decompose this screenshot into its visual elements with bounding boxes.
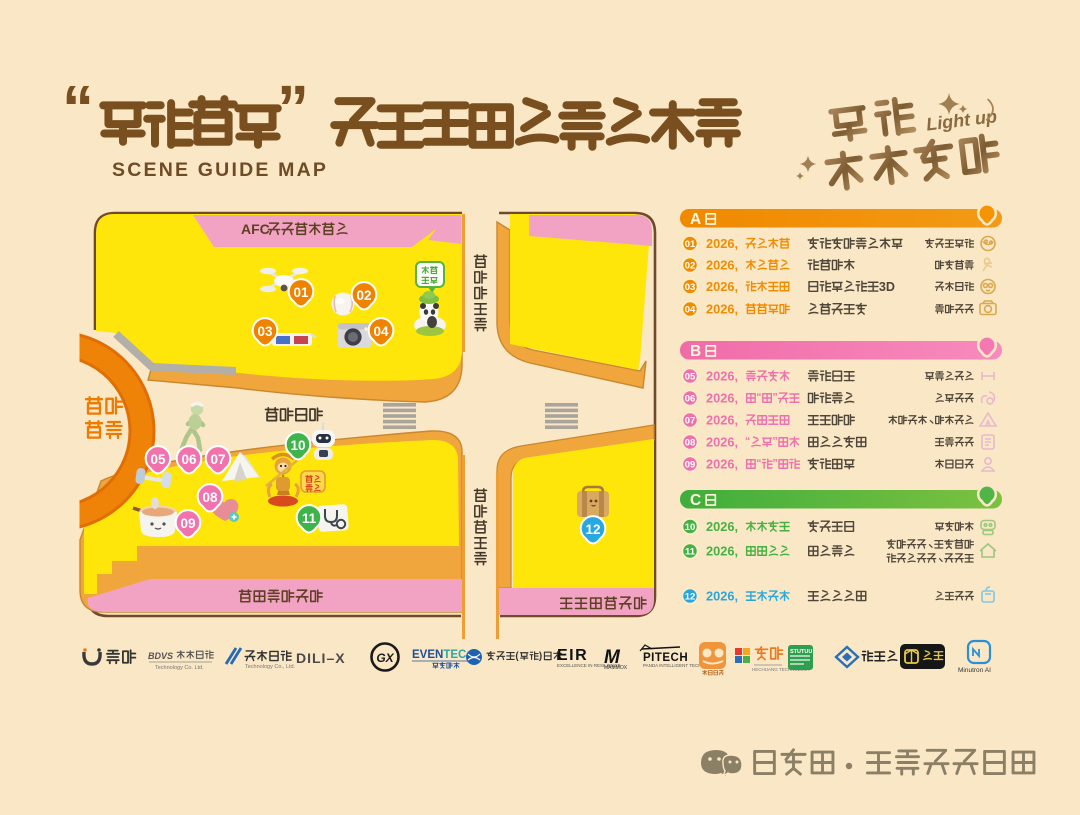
svg-text:10: 10: [685, 522, 696, 533]
svg-text:12: 12: [585, 522, 600, 537]
svg-text:08: 08: [685, 437, 696, 448]
svg-text:04: 04: [373, 324, 389, 339]
svg-text:04: 04: [685, 304, 696, 315]
svg-text:STUTUU: STUTUU: [790, 649, 812, 655]
svg-text:): ): [539, 651, 542, 662]
svg-text:”: ”: [772, 457, 777, 469]
svg-text:02: 02: [685, 260, 696, 271]
svg-text:12: 12: [685, 591, 696, 602]
svg-text:05: 05: [150, 452, 166, 467]
svg-text:06: 06: [685, 393, 696, 404]
svg-text:DILI–X: DILI–X: [296, 650, 346, 666]
svg-text:01: 01: [293, 285, 309, 300]
svg-text:2026,: 2026,: [706, 588, 738, 603]
svg-text:PANDA INTELLIGENT TECH: PANDA INTELLIGENT TECH: [643, 663, 702, 668]
svg-text:C: C: [690, 492, 701, 509]
svg-text:(: (: [515, 651, 519, 662]
svg-text:07: 07: [210, 452, 225, 467]
svg-text:11: 11: [685, 546, 696, 557]
svg-text:Technology Co. Ltd.: Technology Co. Ltd.: [155, 665, 204, 671]
svg-text:2026,: 2026,: [706, 368, 738, 383]
svg-text:EVENTEC: EVENTEC: [412, 649, 466, 661]
svg-text:09: 09: [685, 459, 696, 470]
svg-text:2026,: 2026,: [706, 257, 738, 272]
svg-text:01: 01: [685, 239, 696, 250]
svg-text:2026,: 2026,: [706, 301, 738, 316]
svg-text:AFC: AFC: [241, 221, 270, 237]
svg-text:2026,: 2026,: [706, 456, 738, 471]
svg-text:MAMMOX: MAMMOX: [604, 665, 628, 671]
svg-text:“: “: [62, 72, 94, 144]
svg-text:03: 03: [257, 324, 273, 339]
svg-text:09: 09: [180, 516, 195, 531]
svg-text:2026,: 2026,: [706, 279, 738, 294]
svg-text:2026,: 2026,: [706, 412, 738, 427]
svg-text:“: “: [745, 435, 750, 447]
svg-text:”: ”: [772, 391, 777, 403]
svg-text:02: 02: [356, 288, 371, 303]
svg-text:GX: GX: [376, 651, 394, 665]
svg-text:2026,: 2026,: [706, 434, 738, 449]
svg-text:“: “: [756, 457, 761, 469]
svg-text:Minutron AI: Minutron AI: [958, 667, 991, 674]
svg-text:07: 07: [685, 415, 696, 426]
svg-text:10: 10: [290, 438, 305, 453]
svg-text:BDVS: BDVS: [148, 651, 173, 661]
svg-text:B: B: [690, 343, 701, 360]
svg-text:Technology Co., Ltd.: Technology Co., Ltd.: [245, 664, 296, 670]
svg-text:2026,: 2026,: [706, 236, 738, 251]
svg-text:03: 03: [685, 282, 696, 293]
svg-text:EIR: EIR: [557, 647, 588, 664]
svg-text:2026,: 2026,: [706, 543, 738, 558]
svg-text:3D: 3D: [879, 280, 895, 294]
svg-text:2026,: 2026,: [706, 519, 738, 534]
svg-text:“: “: [756, 391, 761, 403]
svg-text:05: 05: [685, 371, 696, 382]
svg-text:06: 06: [181, 452, 197, 467]
svg-text:08: 08: [202, 490, 218, 505]
svg-text:11: 11: [302, 511, 317, 526]
svg-text:2026,: 2026,: [706, 390, 738, 405]
svg-text:A: A: [690, 211, 701, 228]
svg-text:”: ”: [772, 435, 777, 447]
svg-text:SCENE GUIDE MAP: SCENE GUIDE MAP: [112, 159, 328, 181]
svg-text:”: ”: [277, 72, 309, 144]
